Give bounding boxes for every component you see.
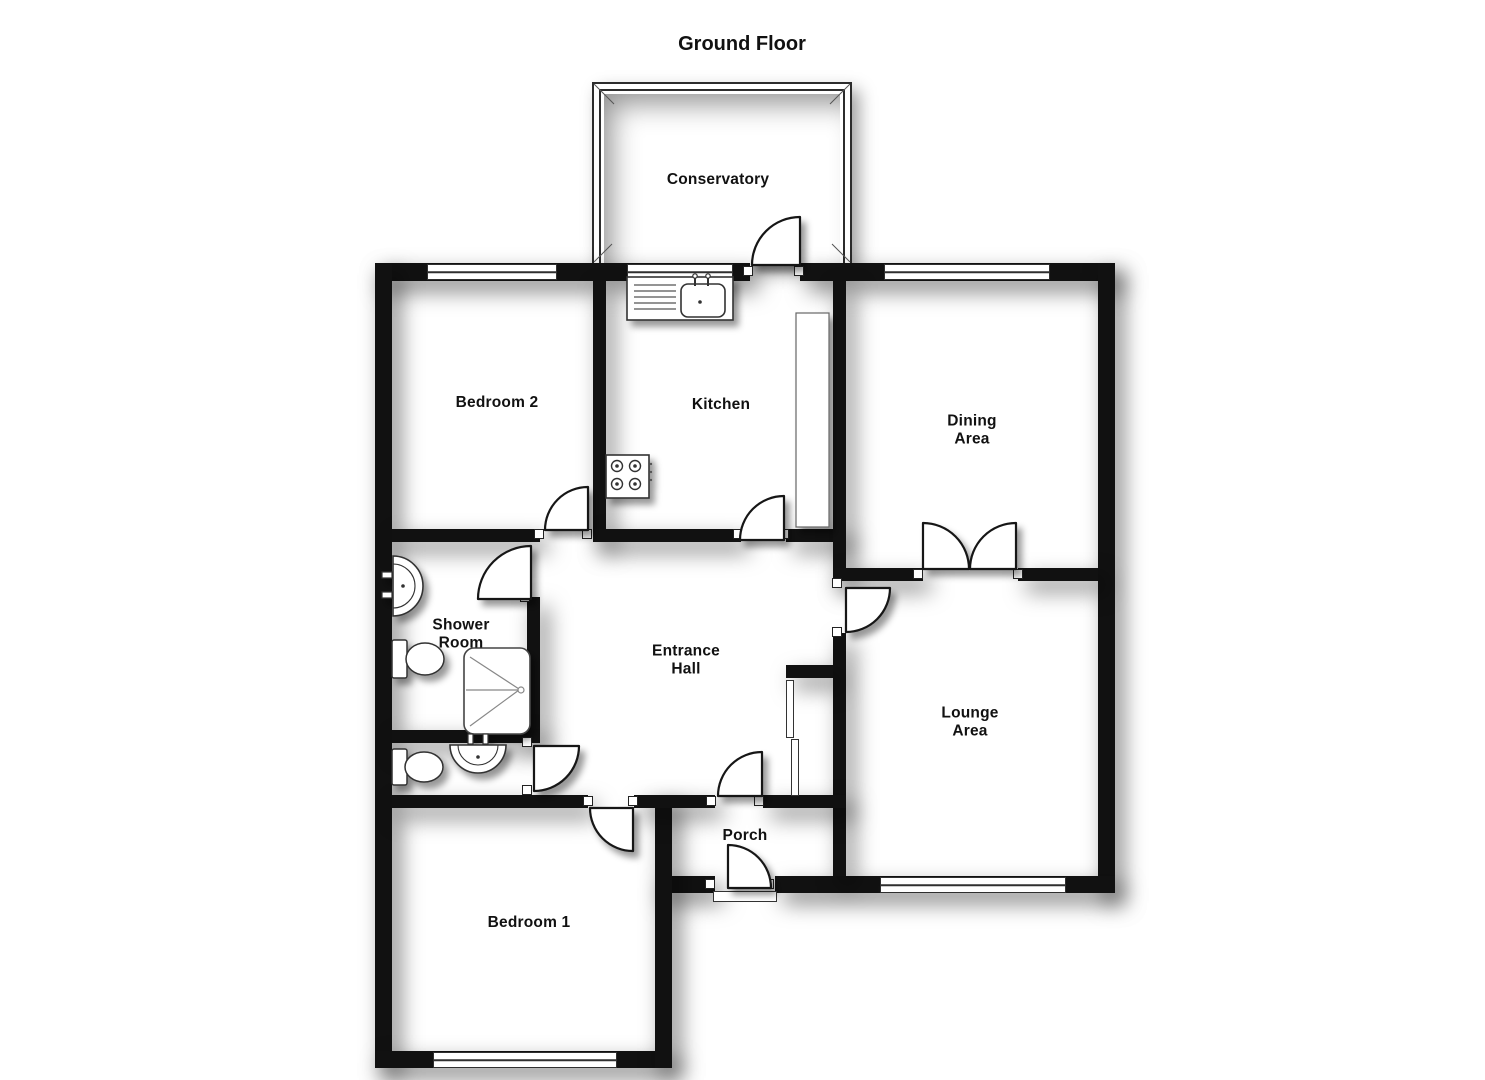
- room-label-dining-area: Dining Area: [947, 413, 996, 450]
- room-label-entrance-hall: Entrance Hall: [652, 643, 720, 680]
- hob-4-burner-icon: [606, 455, 652, 498]
- door-front: [728, 845, 771, 888]
- door-wc: [534, 746, 579, 791]
- worktop-counter: [796, 313, 829, 527]
- room-label-lounge-area: Lounge Area: [941, 705, 998, 742]
- wash-basin-icon: [382, 556, 423, 616]
- door-bedroom-2: [545, 487, 588, 530]
- room-label-kitchen: Kitchen: [692, 396, 750, 414]
- toilet-icon: [392, 749, 443, 785]
- wc-fixtures: [392, 734, 506, 785]
- door-dining-left: [923, 523, 969, 569]
- door-lounge: [846, 588, 890, 632]
- room-label-porch: Porch: [723, 827, 768, 845]
- room-label-bedroom-2: Bedroom 2: [456, 394, 539, 412]
- door-kitchen: [740, 496, 784, 540]
- room-label-bedroom-1: Bedroom 1: [488, 914, 571, 932]
- plan-linework: [0, 0, 1485, 1080]
- floor-plan: Ground Floor: [0, 0, 1485, 1080]
- door-porch-inner: [718, 752, 762, 796]
- door-shower-room: [478, 546, 531, 599]
- door-bedroom-1: [590, 808, 633, 851]
- shower-tray-icon: [464, 648, 530, 734]
- room-label-conservatory: Conservatory: [667, 171, 769, 189]
- door-conservatory: [752, 217, 800, 265]
- page-title: Ground Floor: [560, 33, 924, 56]
- wash-basin-icon: [450, 734, 506, 773]
- door-swings: [478, 217, 1016, 888]
- sink-drainer-unit-icon: [627, 274, 733, 320]
- door-dining-right: [970, 523, 1016, 569]
- room-label-shower-room: Shower Room: [432, 617, 489, 654]
